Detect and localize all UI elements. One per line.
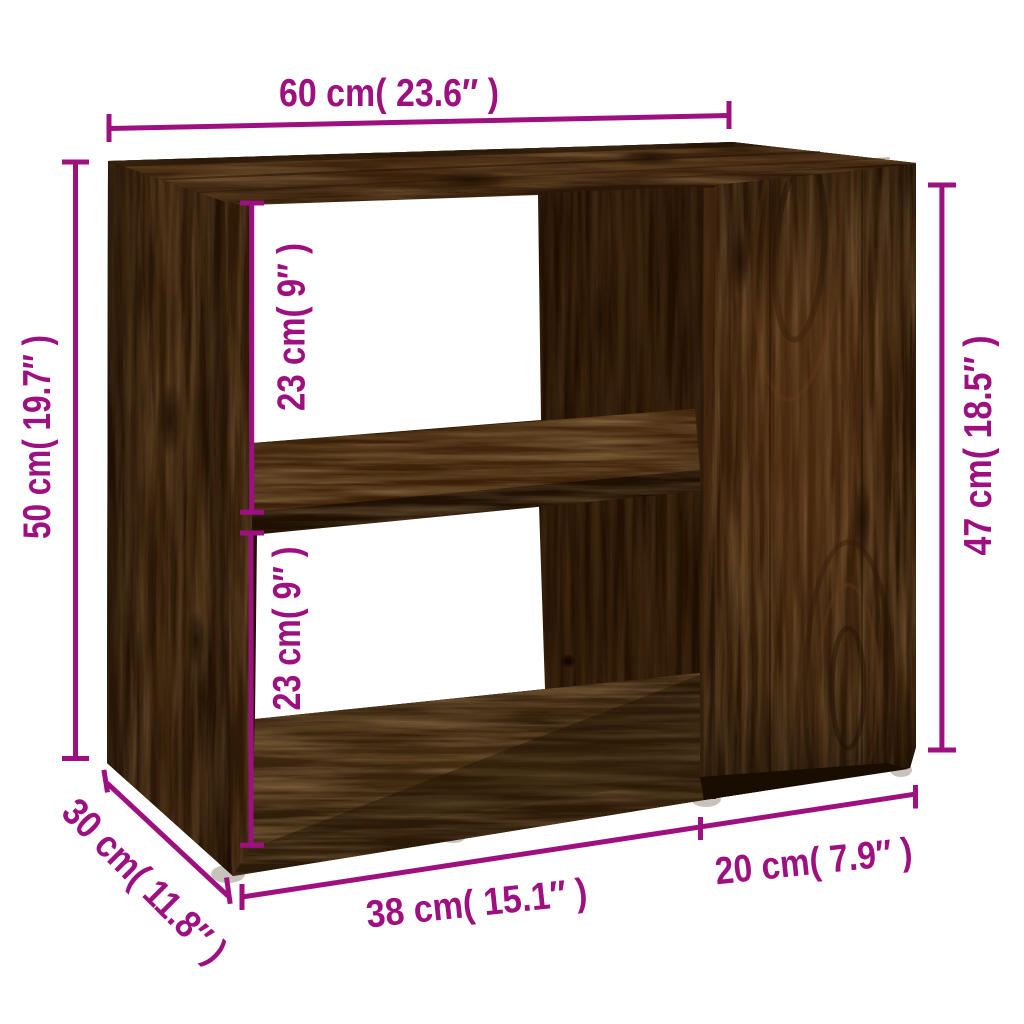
svg-text:47 cm( 18.5″ ): 47 cm( 18.5″ ): [957, 336, 1000, 556]
svg-text:50 cm( 19.7″ ): 50 cm( 19.7″ ): [16, 335, 59, 539]
svg-text:23 cm( 9″ ): 23 cm( 9″ ): [271, 243, 314, 411]
svg-text:60 cm( 23.6″ ): 60 cm( 23.6″ ): [279, 72, 499, 115]
svg-text:23 cm( 9″ ): 23 cm( 9″ ): [266, 547, 309, 711]
